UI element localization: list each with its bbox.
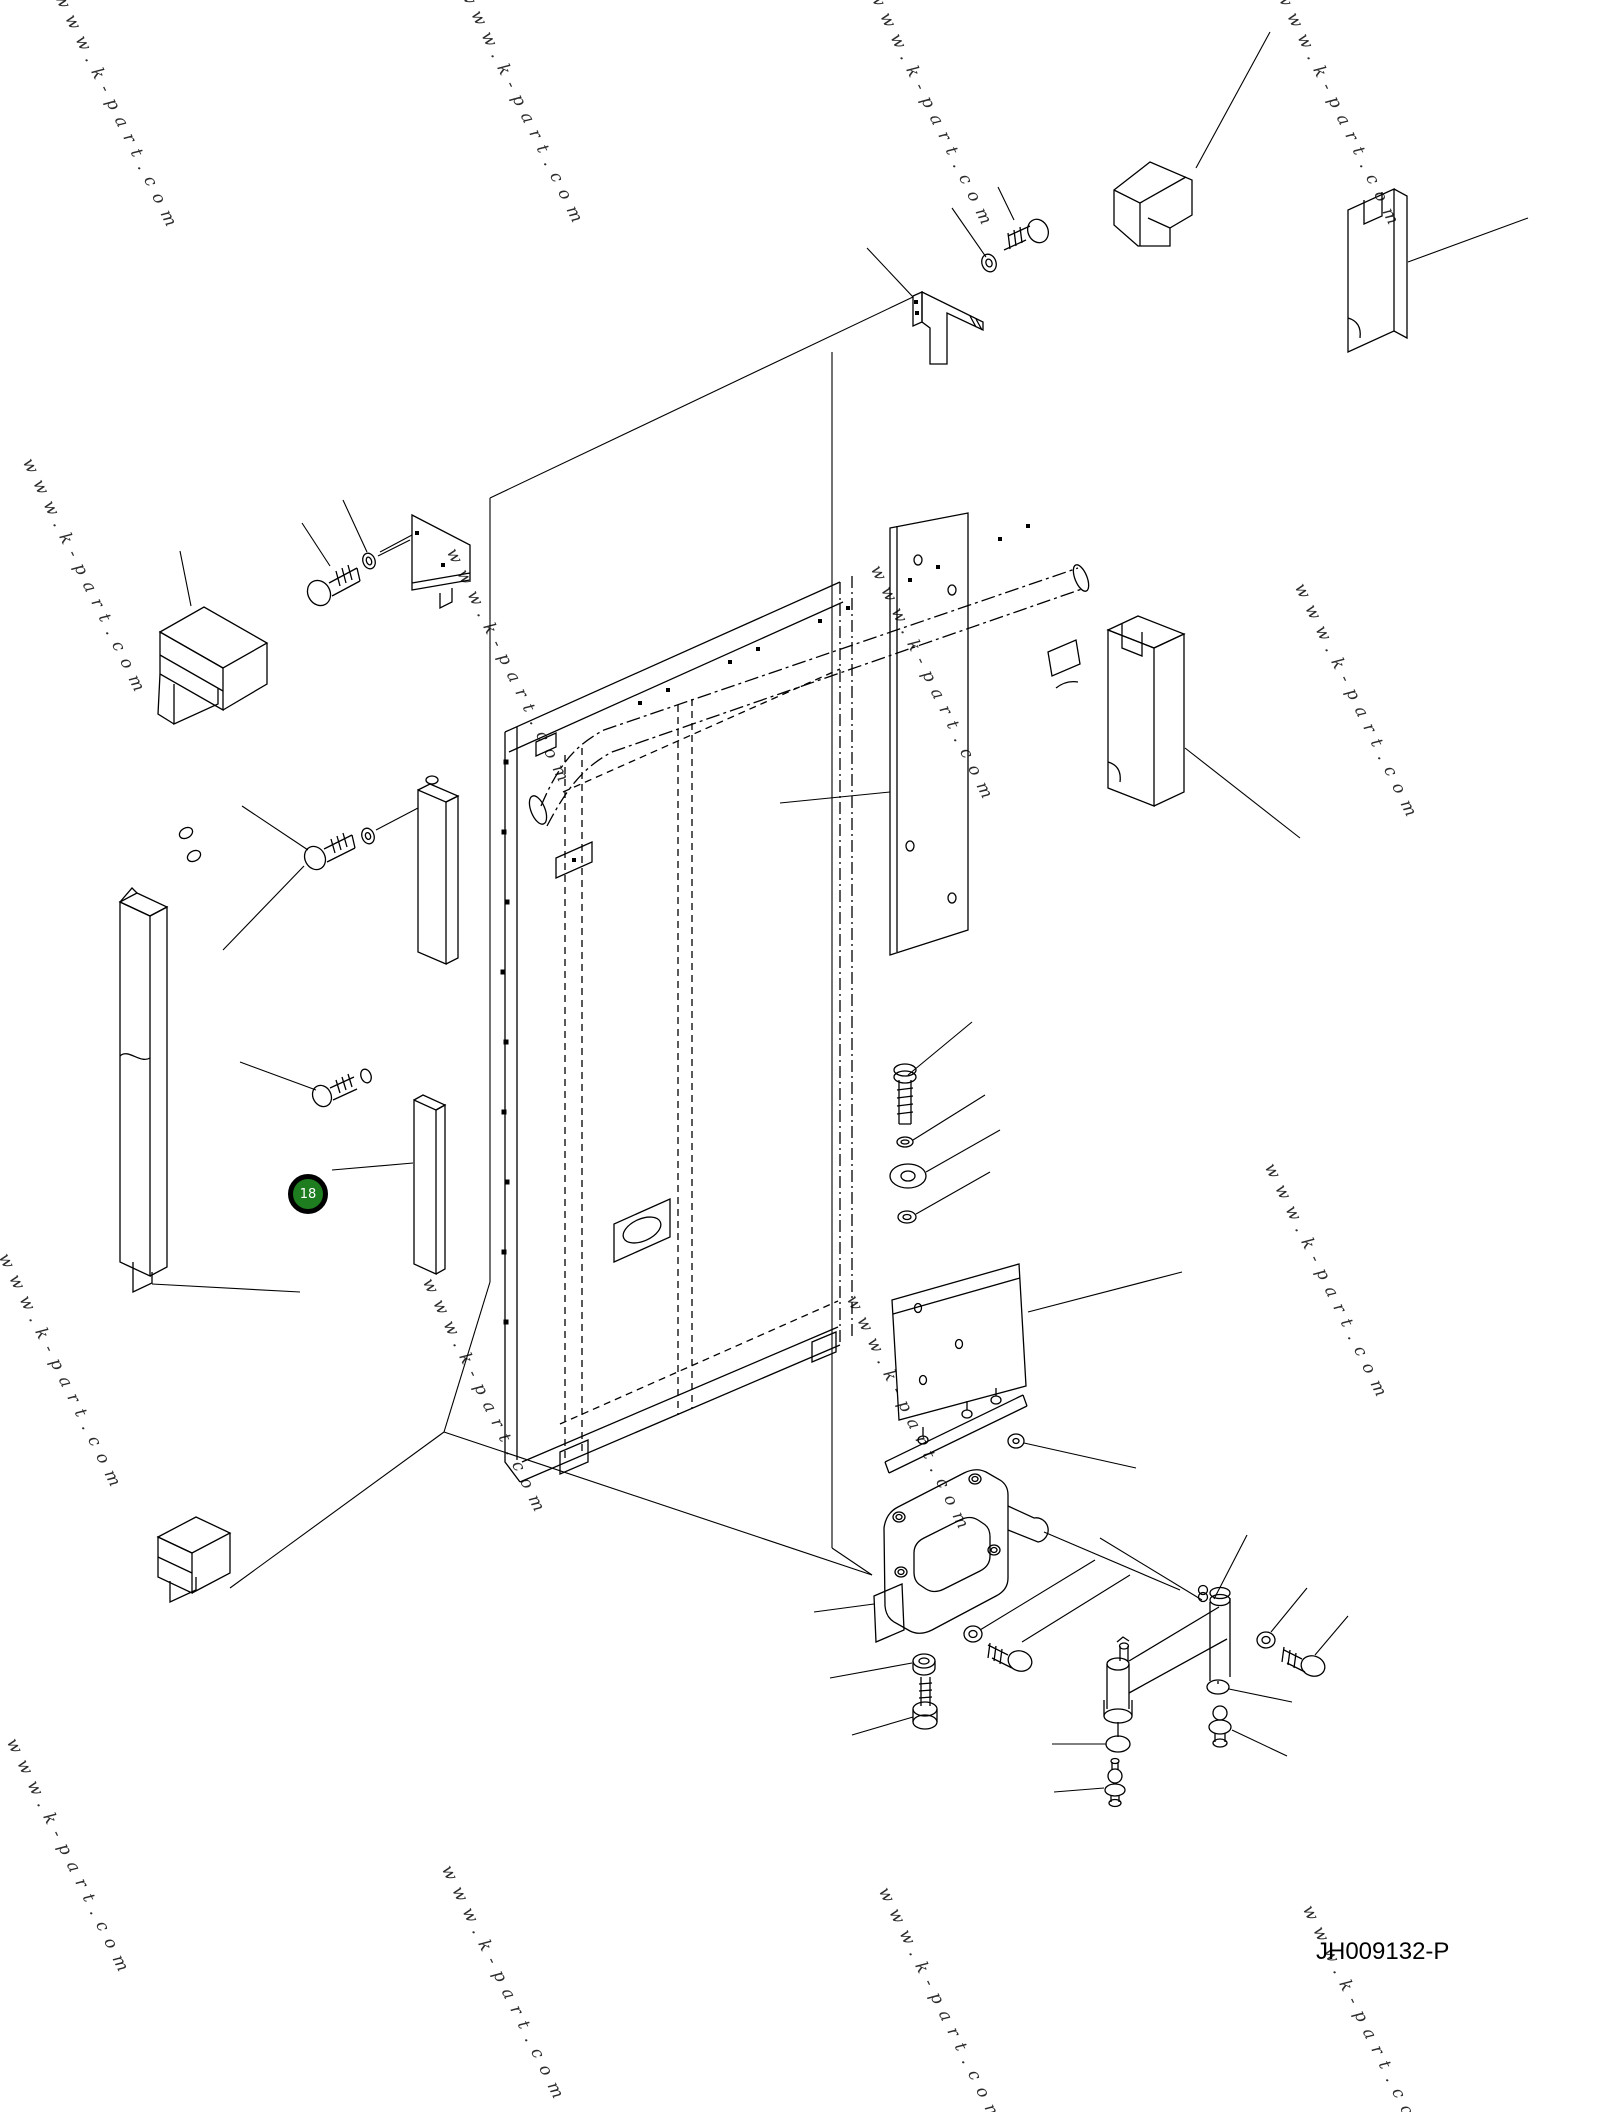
radiator-top-edge <box>505 582 840 732</box>
stud-head-top <box>913 1702 937 1716</box>
mount-cylinder-collar <box>1104 1700 1132 1716</box>
leader-plate-left-1 <box>380 535 412 552</box>
mount-bar-eye-inner <box>1013 1439 1019 1444</box>
washer-right-outer <box>1257 1632 1275 1648</box>
leader-bracket-arm <box>1044 1532 1180 1590</box>
frame-bolts <box>504 1320 509 1325</box>
bolt-vertical-shaft <box>899 1080 911 1124</box>
fitting-1-hex <box>1105 1784 1125 1796</box>
leader-foam-botleft <box>230 1432 444 1588</box>
washer-small-1-inner <box>901 1140 909 1144</box>
leader-stud <box>852 1717 913 1735</box>
bolt-left-1-threads <box>336 565 352 586</box>
top-washer-outer <box>979 252 998 274</box>
leader-mount-post-1 <box>1100 1538 1202 1600</box>
fitting-2-ball <box>1213 1706 1227 1720</box>
foam-block-botleft-right <box>192 1533 230 1593</box>
radiator-foot-left <box>560 1440 588 1474</box>
mount-pin-hook <box>1117 1637 1129 1642</box>
pad-tall-left-arc2 <box>185 848 202 864</box>
leader-pad-right-mid <box>1185 748 1300 838</box>
top-bolt-head <box>1024 216 1052 246</box>
leader-pad-right-top <box>1408 218 1528 262</box>
leader-bolt-lower <box>1022 1575 1130 1642</box>
foam-block-topleft-foot <box>158 674 174 724</box>
mount-pin-cap <box>1120 1643 1129 1649</box>
leader-side-plate <box>780 792 890 803</box>
tank-bolts <box>1026 524 1030 528</box>
tank-bolts <box>998 537 1002 541</box>
angle-block-right-edge2 <box>1140 177 1186 203</box>
bolt-vertical-cap2 <box>894 1064 916 1076</box>
pad-right-top-front <box>1348 189 1394 352</box>
strip-left-upper-side <box>446 796 458 964</box>
pad-tall-left-side <box>150 907 167 1276</box>
washer-small-2-inner <box>903 1215 911 1220</box>
leader-mount-bar <box>1024 1443 1136 1468</box>
leader-axis-left-1 <box>378 540 410 556</box>
leader-foam-topleft <box>180 551 191 606</box>
pad-right-top-cut <box>1348 318 1360 338</box>
fitting-2-base <box>1213 1739 1227 1747</box>
foam-block-botleft-top <box>158 1517 230 1553</box>
cover-plate-outline <box>892 1264 1026 1420</box>
pad-right-mid-top <box>1108 616 1184 648</box>
strip-left-upper-washer <box>426 776 438 784</box>
tank-topleft-bits <box>536 733 556 756</box>
angle-block-right-outline <box>1114 162 1192 246</box>
frame-bolts <box>502 1110 507 1115</box>
leader-cover-plate <box>1028 1272 1182 1312</box>
foam-block-topleft-right <box>223 643 267 710</box>
leader-washer-right <box>1271 1588 1307 1632</box>
exploded-parts-diagram <box>0 0 1605 2112</box>
tank-bolts <box>818 619 822 623</box>
stud-head-bottom <box>913 1715 937 1729</box>
leader-part18 <box>332 1163 413 1170</box>
pad-right-top-notch <box>1364 192 1382 224</box>
tank-bolts <box>728 660 732 664</box>
tank-bolts <box>638 701 642 705</box>
mount-cylinder-sides <box>1107 1664 1129 1709</box>
leader-angle-block <box>1196 32 1270 168</box>
bracket-stud-1a <box>893 1512 905 1522</box>
leader-small-plate <box>814 1604 874 1612</box>
bolt-left-2-threads <box>331 833 347 853</box>
strip-left-upper-front <box>418 790 446 964</box>
tank-bolts <box>756 647 760 651</box>
tank-bolts <box>846 606 850 610</box>
tank-bolts <box>936 565 940 569</box>
plate-left-1-bolts <box>415 531 419 535</box>
strip-part18-side <box>436 1105 445 1274</box>
nut-inner <box>919 1658 929 1664</box>
pad-right-mid-front <box>1108 630 1154 806</box>
panel-outline-bottom-left <box>444 1282 490 1432</box>
washer-pair-inner <box>969 1631 977 1638</box>
bracket-stud-4b <box>991 1548 997 1553</box>
frame-bolts <box>504 1040 509 1045</box>
side-plate-outline <box>890 513 968 955</box>
fitting-2-hex <box>1209 1720 1231 1734</box>
panel-outline-bottom-edge <box>444 1432 872 1575</box>
pad-tall-left-top <box>120 893 167 916</box>
part-callout-label: 18 <box>300 1187 317 1202</box>
bracket-stud-3a <box>895 1567 907 1577</box>
mount-cylinder-top <box>1107 1658 1129 1670</box>
radiator-left-edge <box>505 732 520 1482</box>
top-washer-inner <box>985 258 993 268</box>
foam-block-topleft-front <box>160 632 223 710</box>
cover-plate-hole-3 <box>920 1376 927 1385</box>
foam-block-botleft-band <box>158 1557 192 1573</box>
pad-tall-left-front <box>120 902 150 1276</box>
frame-bolts <box>505 1180 510 1185</box>
mount-cylinder-collar-bottom <box>1104 1709 1132 1723</box>
top-bracket-plate <box>922 292 983 364</box>
bolt-right-head <box>1298 1653 1327 1679</box>
drawing-number: JH009132-P <box>1316 1938 1449 1966</box>
washer-left-2-outer <box>360 826 377 845</box>
bracket-frame-arm <box>1008 1506 1048 1542</box>
bracket-stud-2b <box>972 1477 978 1482</box>
frame-bolts <box>504 760 509 765</box>
top-bolt-shaft <box>1004 226 1030 250</box>
nut-outer <box>913 1654 935 1668</box>
bolt-left-1-shaft <box>329 568 360 596</box>
bracket-stud-3b <box>898 1570 904 1575</box>
foam-block-topleft-band <box>160 655 223 691</box>
bracket-stud-2a <box>969 1474 981 1484</box>
mount-post-cap2 <box>1210 1588 1230 1599</box>
leader-nut <box>830 1663 912 1678</box>
bottom-plate-oval <box>614 1199 670 1262</box>
panel-outline-top-edge <box>490 297 913 498</box>
side-plate-hole-1 <box>914 555 922 565</box>
leader-washer-large <box>926 1130 1000 1172</box>
top-bracket-bolts <box>915 311 919 315</box>
pad-right-top-side <box>1394 189 1407 338</box>
leader-mount-post-2 <box>1214 1535 1247 1599</box>
mount-post-bolt-b <box>1199 1586 1208 1595</box>
frame-bolts <box>505 900 510 905</box>
pad-tall-left-foot <box>133 1262 152 1292</box>
radiator-bottom-edge-inner <box>522 1327 838 1462</box>
angle-block-right-edge1 <box>1114 190 1140 246</box>
leader-bolt-left-2 <box>242 806 308 850</box>
top-pipe-dashdot-inner <box>547 589 1082 826</box>
plate-left-1-outline <box>412 515 470 590</box>
bolt-vertical-cap1 <box>894 1071 916 1083</box>
washer-right-inner <box>1262 1637 1270 1644</box>
top-bracket-bolts <box>914 300 918 304</box>
washer-left-2-inner <box>364 832 371 840</box>
leader-bolt-right <box>1315 1616 1348 1655</box>
leader-washer-small-2 <box>916 1172 990 1214</box>
mount-link-bottom <box>1129 1639 1227 1693</box>
leader-top-washer <box>952 208 986 257</box>
bolt-lower-threads <box>988 1643 1002 1664</box>
tank-bolts <box>908 578 912 582</box>
small-plate-outline <box>874 1584 904 1642</box>
strip-part18-front <box>414 1100 436 1274</box>
side-plate-hole-2 <box>948 585 956 595</box>
foam-block-topleft-top <box>160 607 267 668</box>
tank-corner-arc <box>1056 682 1078 688</box>
top-pipe-dashdot-outer <box>541 568 1078 806</box>
mount-bar-stud-3 <box>991 1396 1001 1404</box>
tank-corner-bracket <box>1048 640 1080 676</box>
leader-fitting-2 <box>1232 1730 1287 1756</box>
leader-top-bolt <box>998 187 1014 220</box>
frame-bolts <box>502 1250 507 1255</box>
washer-large-inner <box>901 1171 915 1181</box>
side-plate-hole-4 <box>948 893 956 903</box>
mount-link-top <box>1129 1607 1219 1661</box>
mount-bar-stud-stems <box>923 1388 996 1436</box>
part-callout-badge[interactable]: 18 <box>288 1174 328 1214</box>
mount-bar-eye-outer <box>1008 1434 1024 1448</box>
side-plate-hole-3 <box>906 841 914 851</box>
pipe-flange-left <box>526 793 550 826</box>
bolt-left-3-head <box>309 1082 335 1110</box>
frame-bolts <box>502 830 507 835</box>
washer-left-1-inner <box>365 556 372 565</box>
radiator-bottom-edge <box>520 1345 840 1482</box>
leader-bolt-left-3 <box>240 1062 316 1090</box>
mount-bar-bottom <box>889 1406 1027 1473</box>
bolt-right-threads <box>1282 1647 1296 1668</box>
mount-bar-stud-1 <box>918 1436 928 1444</box>
bracket-stud-1b <box>896 1515 902 1520</box>
washer-pair-outer <box>964 1626 982 1642</box>
pad-right-mid-cut <box>1108 762 1120 782</box>
bolt-left-2-shaft <box>324 835 355 862</box>
washer-large-outer <box>890 1164 926 1188</box>
washer-left-1-outer <box>361 551 378 570</box>
pipe-flange-right <box>1070 563 1092 593</box>
bracket-frame-slot <box>914 1518 990 1592</box>
leader-post-foot <box>1229 1689 1292 1702</box>
pad-right-mid-side <box>1154 634 1184 806</box>
angle-block-right-step <box>1148 218 1170 228</box>
top-bracket-flange <box>913 292 922 326</box>
leader-washer-left-1 <box>343 500 367 552</box>
washer-small-1-outer <box>897 1137 913 1147</box>
leader-top-bracket <box>867 248 913 297</box>
leader-washer-small-1 <box>913 1095 985 1140</box>
leader-bolt-left-2b <box>223 866 304 950</box>
washer-left-3-outer <box>359 1068 373 1085</box>
mount-bar-stud-2 <box>962 1410 972 1418</box>
frame-bolts <box>501 970 506 975</box>
frame-clamp-bolt <box>572 858 576 862</box>
cover-plate-hole-2 <box>956 1340 963 1349</box>
plate-left-1-bolts <box>441 563 445 567</box>
bolt-lower-head <box>1005 1648 1034 1674</box>
leader-pad-tall-left <box>152 1284 300 1292</box>
fitting-1-base <box>1109 1800 1121 1807</box>
pad-tall-left-cut <box>120 1054 150 1060</box>
fitting-1-tip <box>1111 1759 1119 1764</box>
diagram-canvas: www.k-part.comwww.k-part.comwww.k-part.c… <box>0 0 1605 2112</box>
mount-post-cap1 <box>1210 1595 1230 1606</box>
bolt-left-1-head <box>303 576 335 610</box>
leader-strip-upper <box>376 808 418 830</box>
plate-left-1-tab <box>440 588 452 608</box>
mount-bar-caps <box>885 1395 1027 1473</box>
leader-bolt-vertical <box>908 1022 972 1075</box>
leader-bolt-left-1 <box>302 523 330 566</box>
washer-small-2-outer <box>898 1211 916 1223</box>
cover-plate-fold <box>893 1278 1020 1314</box>
pad-tall-left-arc1 <box>177 825 194 841</box>
fitting-1-ball <box>1108 1769 1122 1783</box>
leader-fitting-1 <box>1054 1788 1104 1792</box>
mount-cyl-foot <box>1106 1736 1130 1752</box>
tank-bolts <box>666 688 670 692</box>
panel-outline-bottom-corner <box>832 1548 872 1575</box>
